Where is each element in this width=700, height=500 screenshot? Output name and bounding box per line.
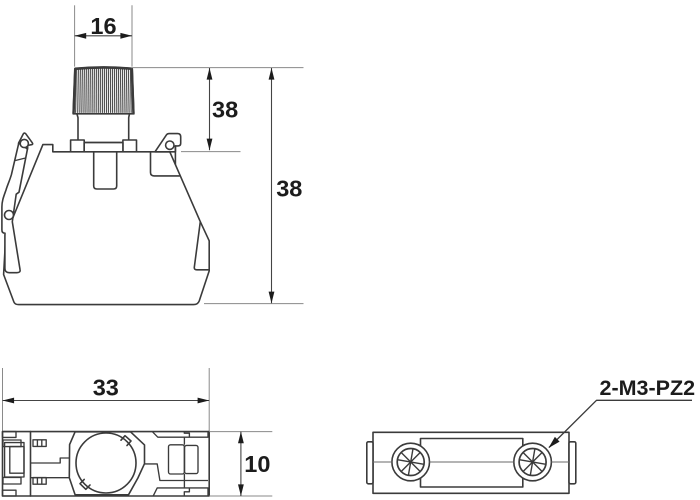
svg-text:16: 16: [90, 13, 116, 39]
svg-text:33: 33: [93, 374, 119, 400]
svg-text:2-M3-PZ2: 2-M3-PZ2: [600, 376, 696, 400]
svg-text:38: 38: [276, 176, 302, 202]
svg-text:10: 10: [244, 451, 270, 477]
svg-text:38: 38: [212, 96, 238, 122]
